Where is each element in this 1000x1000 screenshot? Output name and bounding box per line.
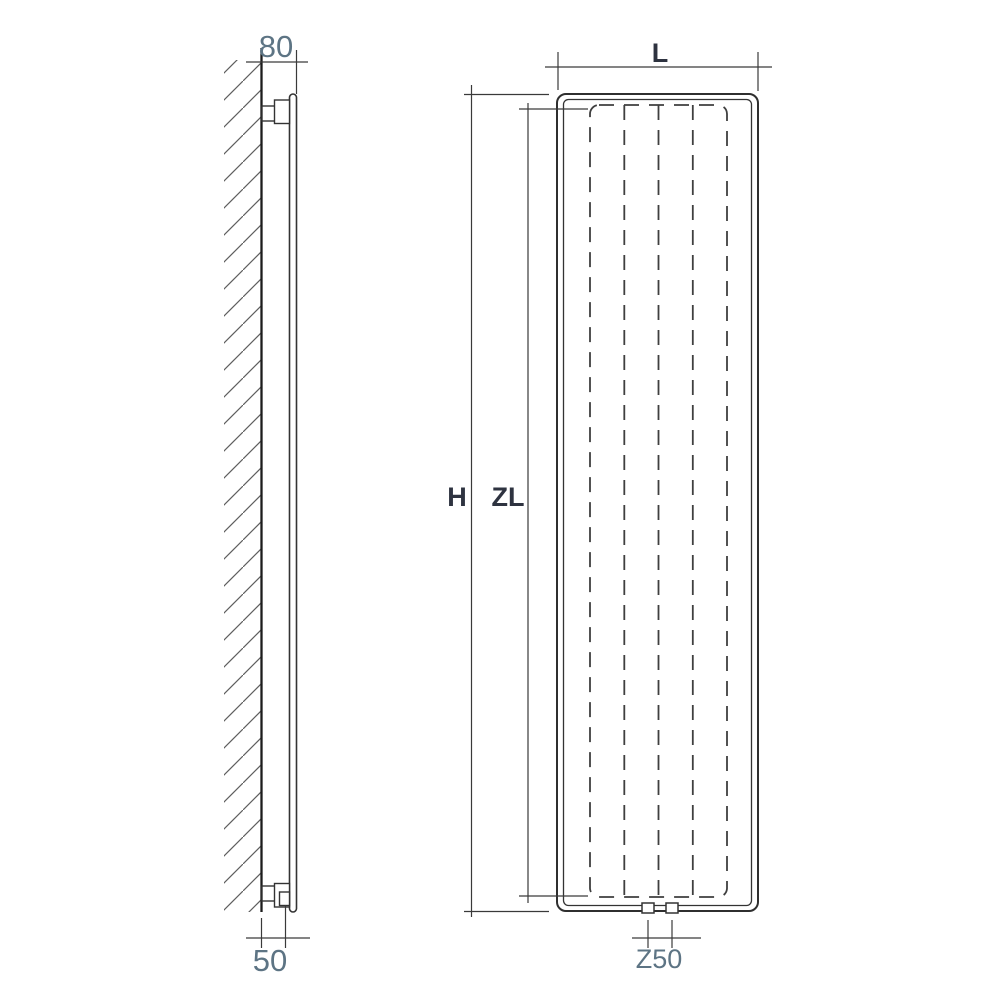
dim-H-label: H bbox=[447, 482, 467, 512]
dim-ZL-label: ZL bbox=[492, 482, 525, 512]
radiator-technical-drawing: 80 50 L bbox=[0, 0, 1000, 1000]
top-bracket-panel-clip bbox=[275, 100, 290, 124]
connector-right bbox=[666, 903, 678, 913]
dim-width: L bbox=[545, 38, 772, 91]
drawing-canvas: 80 50 L bbox=[0, 0, 1000, 1000]
dim-Z50-label: Z50 bbox=[636, 944, 683, 974]
dim-80-label: 80 bbox=[259, 29, 293, 64]
radiator-side-panel bbox=[290, 94, 297, 912]
dim-L-label: L bbox=[652, 38, 669, 68]
front-view: L H ZL bbox=[447, 38, 772, 974]
wall-hatching bbox=[224, 60, 262, 912]
bottom-connection-valve bbox=[280, 892, 290, 906]
top-mounting-bracket bbox=[262, 100, 290, 124]
dim-50-label: 50 bbox=[253, 943, 287, 978]
side-view: 80 50 bbox=[224, 29, 310, 978]
connector-left bbox=[642, 903, 654, 913]
dim-connection-spacing: Z50 bbox=[632, 920, 701, 974]
dim-wall-to-pipe: 50 bbox=[246, 918, 310, 978]
